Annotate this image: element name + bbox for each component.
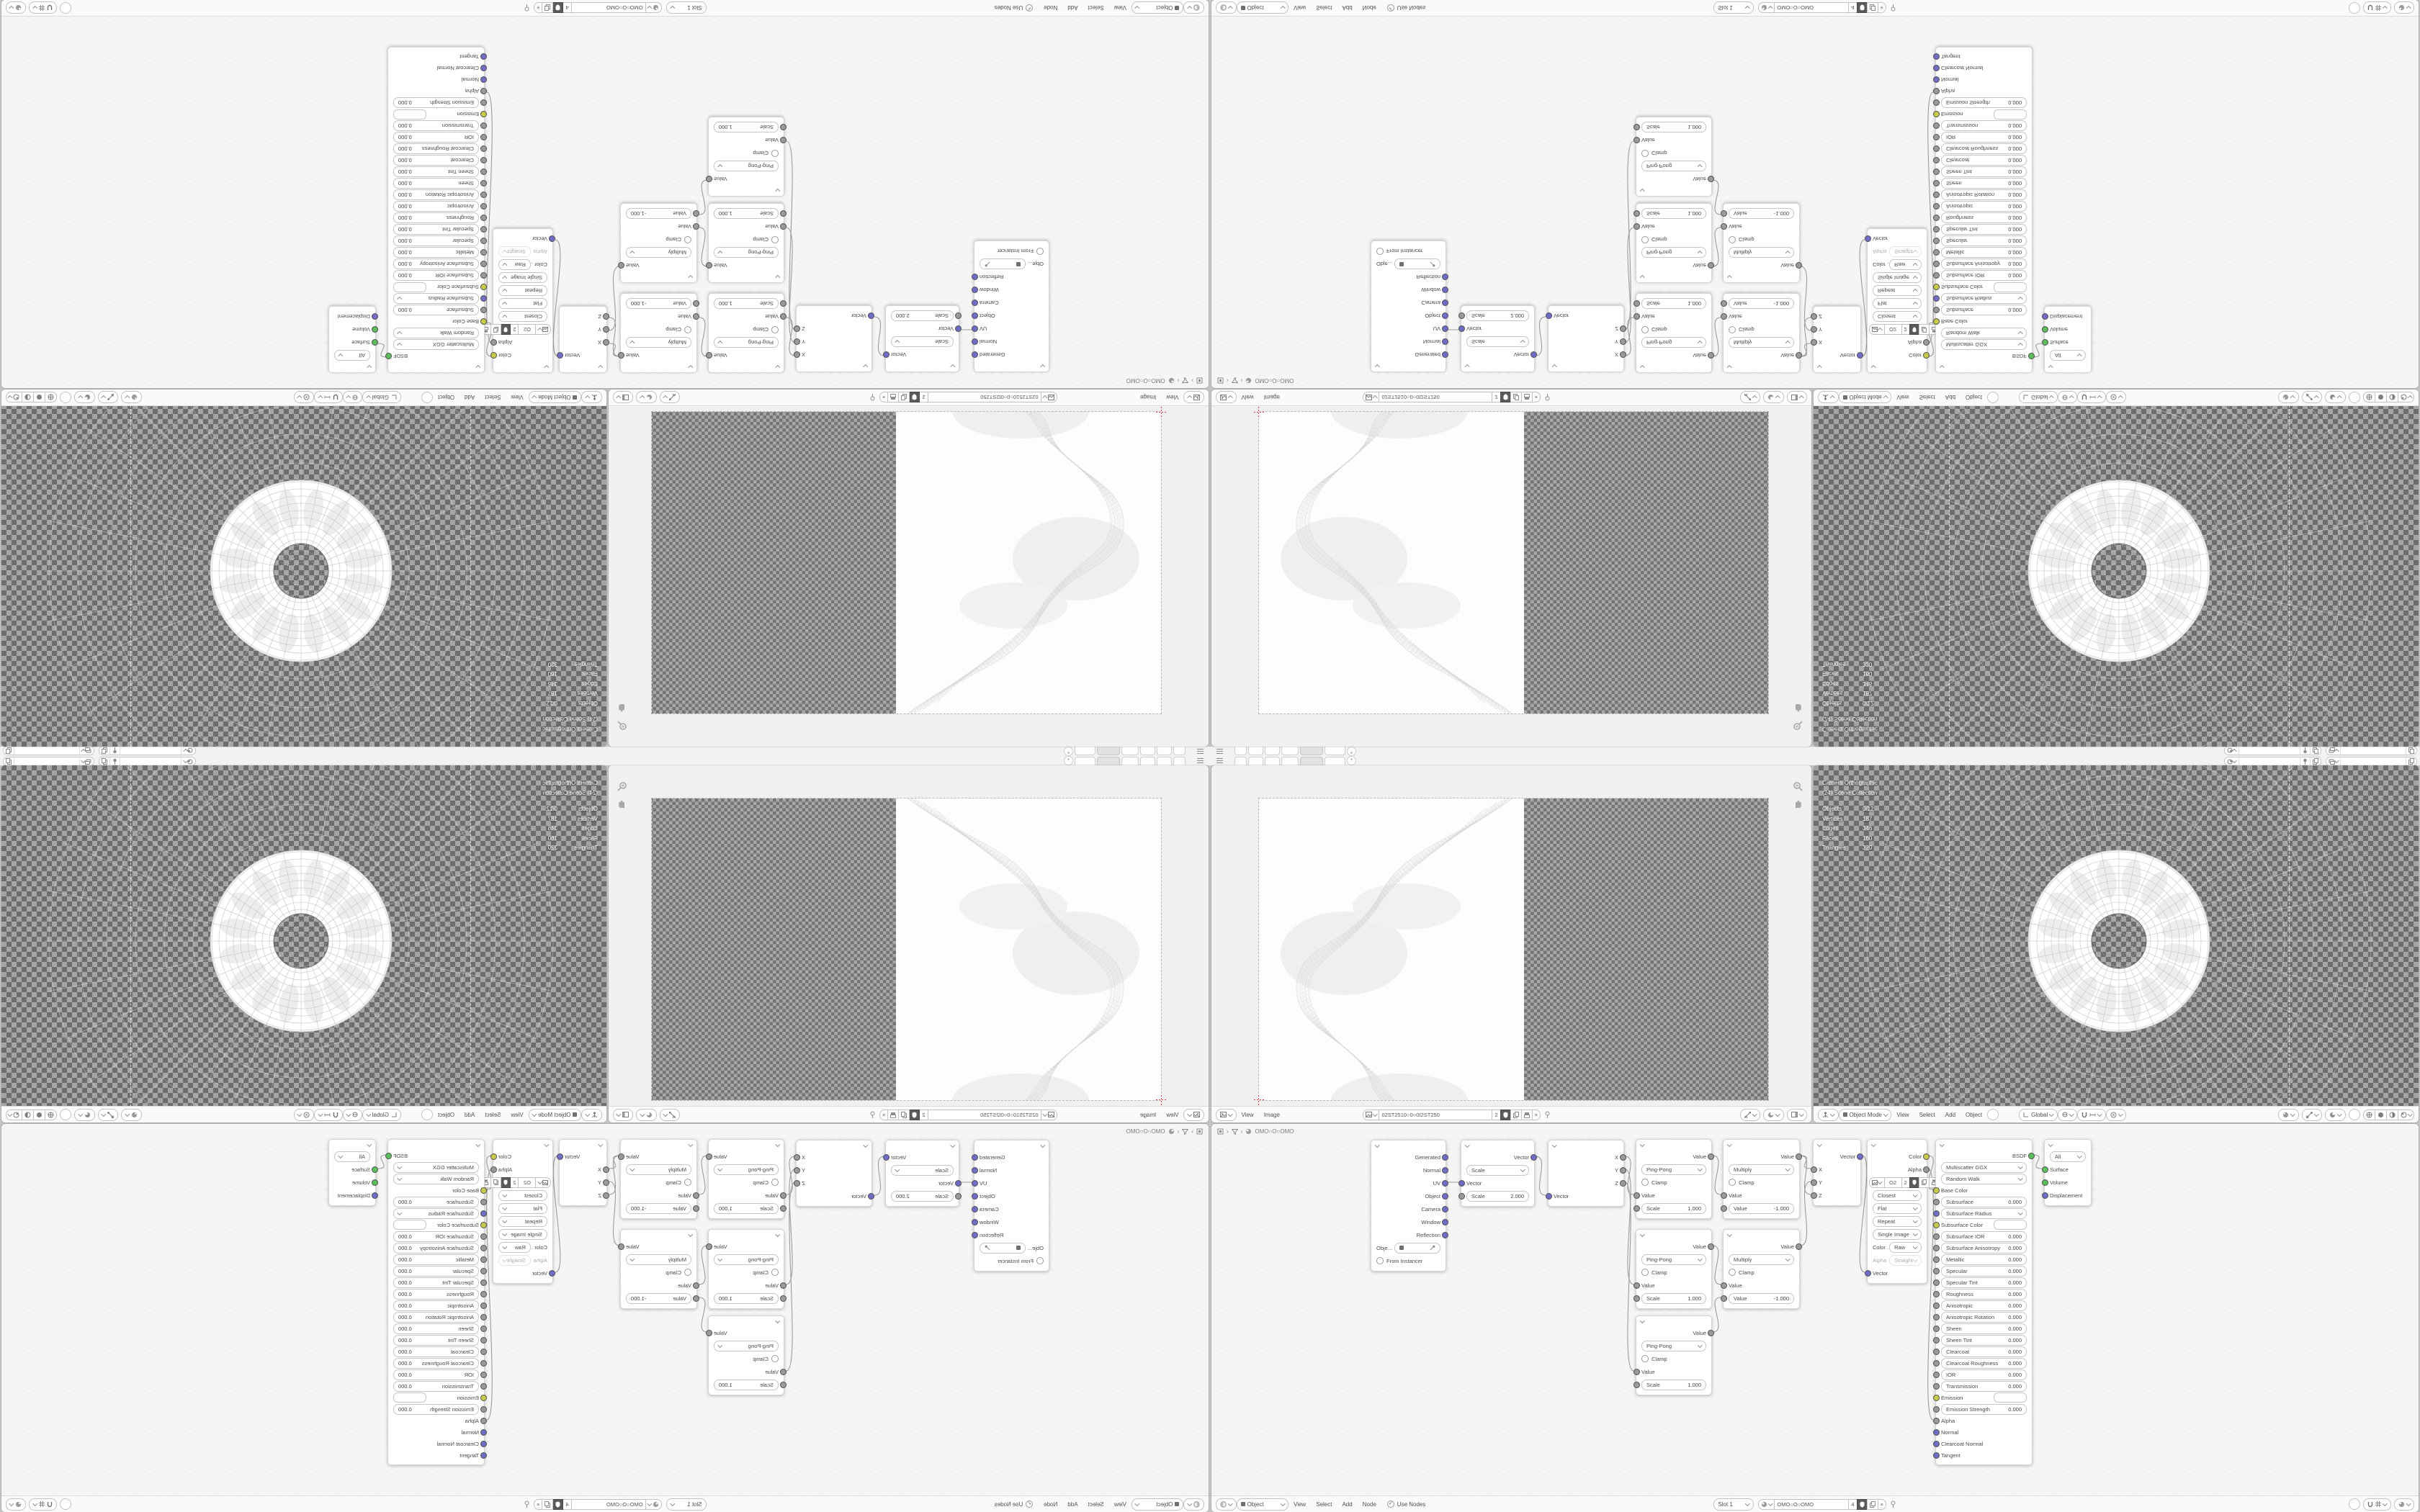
checkbox[interactable]: [771, 1355, 779, 1362]
eyedropper-icon[interactable]: [985, 1245, 990, 1251]
value-socket[interactable]: [1721, 210, 1727, 217]
overlays-button[interactable]: [1763, 392, 1784, 404]
cursor-2d[interactable]: [1156, 407, 1166, 417]
value-field[interactable]: Subsurface0.000: [1941, 305, 2027, 316]
principled-bsdf-node[interactable]: BSDFMultiscatter GGXRandom WalkBase Colo…: [387, 47, 485, 373]
value-socket[interactable]: [480, 226, 487, 233]
object-field[interactable]: [980, 1243, 1026, 1254]
dropdown[interactable]: Multiply: [1729, 1254, 1794, 1265]
value-socket[interactable]: [706, 1330, 712, 1336]
value-field[interactable]: Anisotropic Rotation0.000: [393, 190, 479, 201]
workspace-tab[interactable]: [1234, 747, 1247, 756]
snap-settings-button[interactable]: [314, 392, 343, 404]
fake-user-button[interactable]: [1857, 3, 1867, 14]
image-users-button[interactable]: 2: [511, 1177, 519, 1188]
value-socket[interactable]: [1811, 1192, 1817, 1199]
separate-xyz-node[interactable]: XYZVector: [796, 305, 872, 372]
value-socket[interactable]: [1633, 124, 1640, 130]
value-socket[interactable]: [1811, 1179, 1817, 1186]
value-socket[interactable]: [490, 1166, 497, 1173]
value-field[interactable]: Emission Strength0.000: [393, 1404, 479, 1415]
math-pingpong-node[interactable]: ValuePing-PongClampValueScale1.000: [708, 203, 784, 283]
value-socket[interactable]: [618, 1153, 624, 1160]
checkbox[interactable]: [1729, 1179, 1736, 1186]
color-socket[interactable]: [1923, 352, 1930, 359]
value-socket[interactable]: [1796, 352, 1802, 359]
value-socket[interactable]: [780, 210, 786, 217]
value-field[interactable]: Value-1.000: [626, 1293, 691, 1304]
node-collapse-chevron[interactable]: [709, 186, 784, 196]
pan-gizmo-icon[interactable]: [1793, 798, 1803, 809]
node-collapse-chevron[interactable]: [1868, 1140, 1927, 1150]
use-nodes-toggle[interactable]: ✓ Use Nodes: [1387, 4, 1426, 12]
menu-object[interactable]: Object: [438, 1112, 454, 1118]
vector-socket[interactable]: [972, 338, 978, 345]
checkbox[interactable]: [684, 1179, 691, 1186]
dropdown[interactable]: Closest: [1873, 1190, 1922, 1201]
workspace-tab[interactable]: [1325, 747, 1345, 756]
value-socket[interactable]: [706, 352, 712, 359]
snap-settings-button[interactable]: [314, 1109, 343, 1121]
workspace-tab[interactable]: [1248, 747, 1263, 756]
pack-image-button[interactable]: [1521, 392, 1532, 403]
image-users-button[interactable]: 2: [920, 392, 928, 403]
value-socket[interactable]: [1633, 223, 1640, 230]
menu-add[interactable]: Add: [1342, 5, 1352, 12]
gizmo-button[interactable]: [1740, 392, 1761, 404]
dropdown[interactable]: Ping-Pong: [714, 1254, 779, 1265]
value-socket[interactable]: [480, 122, 487, 129]
dropdown[interactable]: Subsurface Radius: [393, 294, 479, 305]
color-socket[interactable]: [490, 1153, 497, 1160]
material-shading-button[interactable]: [23, 392, 35, 403]
cursor-2d[interactable]: [1254, 1095, 1264, 1105]
radial-mesh-object[interactable]: [1814, 765, 2419, 1107]
unlink-material-button[interactable]: ×: [534, 3, 542, 14]
value-field[interactable]: Scale1.000: [1641, 122, 1706, 133]
image-users-button[interactable]: 2: [1492, 1110, 1500, 1120]
node-collapse-chevron[interactable]: [709, 362, 784, 372]
shader-socket[interactable]: [2028, 353, 2035, 359]
color-swatch[interactable]: [1994, 282, 2027, 292]
solid-shading-button[interactable]: [2375, 392, 2386, 403]
vector-socket[interactable]: [868, 312, 874, 319]
show-gizmo-button[interactable]: [2278, 1109, 2299, 1121]
zoom-gizmo-icon[interactable]: [1793, 781, 1803, 791]
value-socket[interactable]: [480, 1245, 487, 1251]
vector-socket[interactable]: [1857, 352, 1863, 359]
value-socket[interactable]: [1933, 215, 1940, 221]
value-field[interactable]: Scale1.000: [714, 209, 779, 220]
math-multiply-node[interactable]: ValueMultiplyClampValueValue-1.000: [620, 1139, 697, 1219]
menu-node[interactable]: Node: [1363, 5, 1376, 12]
transform-gizmo-button[interactable]: [1987, 1109, 1999, 1120]
unlink-image-button[interactable]: ×: [879, 1110, 888, 1120]
app-menu-icon[interactable]: [1216, 751, 1223, 752]
value-socket[interactable]: [780, 124, 786, 130]
value-field[interactable]: Scale2.000: [891, 311, 954, 322]
dropdown[interactable]: Single Image: [498, 273, 547, 284]
principled-bsdf-node[interactable]: BSDFMultiscatter GGXRandom WalkBase Colo…: [1935, 1139, 2033, 1465]
dropdown[interactable]: Flat: [498, 299, 547, 310]
workspace-tabs[interactable]: [1075, 747, 1186, 756]
menu-select[interactable]: Select: [1088, 1501, 1104, 1508]
shader-socket[interactable]: [2028, 1153, 2035, 1159]
slot-dropdown[interactable]: Slot 1: [1713, 2, 1754, 14]
dropdown[interactable]: Ping-Pong: [1641, 248, 1706, 258]
value-socket[interactable]: [480, 307, 487, 313]
value-field[interactable]: Roughness0.000: [1941, 213, 2027, 224]
vector-socket[interactable]: [557, 1153, 563, 1160]
copy-icon[interactable]: [2313, 747, 2318, 754]
mode-dropdown[interactable]: Object Mode: [1839, 392, 1892, 404]
value-socket[interactable]: [480, 203, 487, 210]
value-socket[interactable]: [480, 1372, 487, 1378]
pin-icon[interactable]: [113, 758, 118, 765]
node-collapse-chevron[interactable]: [1636, 272, 1711, 282]
principled-bsdf-node[interactable]: BSDFMultiscatter GGXRandom WalkBase Colo…: [387, 1139, 485, 1465]
material-output-node[interactable]: AllSurfaceVolumeDisplacement: [328, 1139, 376, 1206]
math-pingpong-node[interactable]: ValuePing-PongClampValueScale1.000: [1636, 1229, 1712, 1309]
vector-socket[interactable]: [1458, 325, 1465, 332]
vector-socket[interactable]: [972, 1193, 978, 1200]
menu-add[interactable]: Add: [1945, 395, 1955, 401]
value-field[interactable]: Anisotropic Rotation0.000: [1941, 190, 2027, 201]
value-field[interactable]: Scale2.000: [891, 1191, 954, 1202]
value-socket[interactable]: [780, 1295, 786, 1302]
color-socket[interactable]: [1933, 1222, 1940, 1228]
value-socket[interactable]: [693, 1295, 699, 1302]
menu-view[interactable]: View: [1166, 395, 1178, 401]
node-collapse-chevron[interactable]: [329, 362, 375, 372]
overlays-dropdown-button[interactable]: [98, 392, 119, 404]
menu-view[interactable]: View: [1294, 1501, 1306, 1508]
value-socket[interactable]: [1708, 1243, 1714, 1250]
math-multiply-node[interactable]: ValueMultiplyClampValueValue-1.000: [620, 293, 697, 373]
value-socket[interactable]: [780, 300, 786, 307]
value-field[interactable]: Subsurface0.000: [393, 305, 479, 316]
value-field[interactable]: Sheen0.000: [393, 1323, 479, 1334]
shading-extra-button[interactable]: [60, 1109, 72, 1120]
value-field[interactable]: Roughness0.000: [393, 213, 479, 224]
shader-context-dropdown[interactable]: Object: [1131, 1498, 1184, 1511]
value-socket[interactable]: [1933, 1256, 1940, 1263]
value-socket[interactable]: [780, 1192, 786, 1199]
color-socket[interactable]: [480, 1187, 487, 1194]
dropdown[interactable]: Random Walk: [1941, 1174, 2027, 1184]
node-collapse-chevron[interactable]: [329, 1140, 375, 1150]
node-collapse-chevron[interactable]: [621, 272, 696, 282]
value-socket[interactable]: [1933, 1360, 1940, 1367]
value-socket[interactable]: [603, 313, 609, 320]
node-collapse-chevron[interactable]: [886, 361, 959, 372]
menu-view[interactable]: View: [1896, 395, 1909, 401]
checkbox[interactable]: [1641, 326, 1649, 333]
workspace-tab[interactable]: [1248, 757, 1263, 765]
transform-gizmo-button[interactable]: [1987, 392, 1999, 403]
node-collapse-chevron[interactable]: [1461, 1140, 1534, 1151]
value-field[interactable]: Clearcoat Roughness0.000: [1941, 1358, 2027, 1369]
wireframe-shading-button[interactable]: [46, 1110, 58, 1120]
dropdown[interactable]: Scale: [891, 1165, 954, 1176]
color-socket[interactable]: [490, 352, 497, 359]
value-socket[interactable]: [480, 1383, 487, 1390]
material-users-button[interactable]: 4: [1848, 3, 1856, 14]
dropdown[interactable]: Straight: [1889, 1255, 1922, 1266]
options-button[interactable]: [1787, 1109, 1808, 1121]
fake-user-button[interactable]: [501, 1177, 511, 1188]
value-field[interactable]: Sheen0.000: [1941, 179, 2027, 189]
dropdown[interactable]: All: [334, 351, 370, 361]
value-socket[interactable]: [1620, 1167, 1626, 1174]
checkbox[interactable]: [771, 326, 779, 333]
value-socket[interactable]: [706, 1243, 712, 1250]
workspace-tab[interactable]: [1075, 757, 1095, 765]
workspace-tab[interactable]: [1097, 747, 1120, 756]
workspace-tab[interactable]: [1173, 747, 1186, 756]
vector-math-node[interactable]: VectorScaleVectorScale2.000: [885, 1140, 959, 1207]
value-field[interactable]: Value-1.000: [1729, 209, 1794, 220]
dropdown[interactable]: All: [2050, 351, 2086, 361]
vector-socket[interactable]: [1442, 1219, 1448, 1225]
vector-socket[interactable]: [1865, 1270, 1871, 1277]
math-pingpong-node[interactable]: ValuePing-PongClampValueScale1.000: [1636, 203, 1712, 283]
separate-xyz-node[interactable]: XYZVector: [1548, 1140, 1624, 1207]
dropdown[interactable]: Single Image: [1873, 1229, 1922, 1240]
image-name-field[interactable]: O2: [519, 325, 537, 336]
value-socket[interactable]: [955, 1193, 962, 1200]
color-swatch[interactable]: [393, 109, 426, 120]
pan-gizmo-icon[interactable]: [1793, 703, 1803, 714]
value-socket[interactable]: [693, 313, 699, 320]
checkbox[interactable]: [1729, 236, 1736, 243]
dropdown[interactable]: Straight: [1889, 247, 1922, 258]
value-socket[interactable]: [780, 1282, 786, 1289]
radial-mesh-object[interactable]: [1, 405, 606, 747]
vector-socket[interactable]: [1933, 1441, 1940, 1447]
browse-image-button[interactable]: [537, 325, 552, 336]
value-socket[interactable]: [1721, 1282, 1727, 1289]
vector-socket[interactable]: [1546, 312, 1552, 319]
value-socket[interactable]: [480, 215, 487, 221]
value-socket[interactable]: [706, 1153, 712, 1160]
shading-extra-button[interactable]: [60, 392, 72, 403]
vector-socket[interactable]: [1442, 351, 1448, 358]
color-swatch[interactable]: [1994, 1392, 2027, 1403]
material-name-field[interactable]: OMO○O○OMO: [1774, 1499, 1848, 1510]
texture-coordinate-node[interactable]: GeneratedNormalUVObjectCameraWindowRefle…: [974, 240, 1049, 372]
material-name-field[interactable]: OMO○O○OMO: [572, 3, 646, 14]
mode-dropdown[interactable]: Object Mode: [529, 1109, 582, 1121]
object-field[interactable]: [1394, 259, 1440, 270]
snap-settings-button[interactable]: [30, 2, 58, 14]
node-collapse-chevron[interactable]: [1868, 362, 1927, 372]
pin-icon[interactable]: [869, 394, 876, 401]
fake-user-button[interactable]: [1500, 1110, 1510, 1120]
rendered-shading-button[interactable]: [6, 1110, 23, 1120]
scene-selector[interactable]: [99, 746, 197, 755]
dropdown[interactable]: Ping-Pong: [714, 161, 779, 172]
checkbox[interactable]: [684, 1269, 691, 1276]
transform-gizmo-button[interactable]: [421, 392, 433, 403]
value-socket[interactable]: [693, 210, 699, 217]
show-gizmo-button[interactable]: [122, 1109, 143, 1121]
xray-button[interactable]: [2325, 392, 2346, 404]
checkbox[interactable]: [1641, 1269, 1649, 1276]
overlays-button[interactable]: [2394, 2, 2415, 14]
node-collapse-chevron[interactable]: [1371, 361, 1446, 372]
editor-type-button[interactable]: [1184, 1109, 1205, 1121]
dropdown[interactable]: Straight: [498, 1255, 531, 1266]
value-field[interactable]: Value-1.000: [1729, 1203, 1794, 1214]
value-field[interactable]: Transmission0.000: [1941, 1381, 2027, 1392]
proportional-edit-button[interactable]: [2106, 1109, 2127, 1121]
value-field[interactable]: Value-1.000: [626, 209, 691, 220]
value-socket[interactable]: [480, 1314, 487, 1320]
vector-socket[interactable]: [1933, 1429, 1940, 1436]
value-field[interactable]: Emission Strength0.000: [393, 98, 479, 109]
snap-toggle-button[interactable]: [2349, 1498, 2360, 1510]
shader-context-dropdown[interactable]: Object: [1237, 2, 1289, 14]
value-socket[interactable]: [480, 157, 487, 163]
menu-object[interactable]: Object: [1966, 395, 1982, 401]
copy-icon[interactable]: [6, 758, 12, 765]
node-collapse-chevron[interactable]: [709, 1230, 784, 1240]
workspace-tab[interactable]: [1325, 757, 1345, 765]
menu-view[interactable]: View: [1114, 1501, 1126, 1508]
value-field[interactable]: Subsurface IOR0.000: [1941, 1231, 2027, 1242]
copy-icon[interactable]: [2313, 758, 2318, 765]
app-menu-icon[interactable]: [1197, 751, 1204, 752]
checkbox[interactable]: [1641, 1179, 1649, 1186]
value-socket[interactable]: [1933, 157, 1940, 163]
value-field[interactable]: Sheen Tint0.000: [1941, 1335, 2027, 1346]
workspace-tab[interactable]: [1075, 747, 1095, 756]
mode-dropdown[interactable]: Object Mode: [1839, 1109, 1892, 1121]
image-name-field[interactable]: 02ST2510○0○0I2ST250: [928, 392, 1041, 403]
value-socket[interactable]: [603, 1192, 609, 1199]
value-socket[interactable]: [693, 300, 699, 307]
value-field[interactable]: Scale1.000: [1641, 1203, 1706, 1214]
dropdown[interactable]: Closest: [1873, 312, 1922, 323]
unlink-image-button[interactable]: ×: [1532, 392, 1541, 403]
vector-socket[interactable]: [1458, 1180, 1465, 1187]
xray-button[interactable]: [75, 1109, 96, 1121]
vector-socket[interactable]: [1442, 338, 1448, 345]
value-socket[interactable]: [1721, 1205, 1727, 1212]
vector-socket[interactable]: [972, 1219, 978, 1225]
editor-gizmos[interactable]: [617, 781, 627, 809]
overlays-button[interactable]: [6, 1498, 27, 1511]
color-swatch[interactable]: [393, 282, 426, 292]
vector-socket[interactable]: [1546, 1193, 1552, 1200]
pin-icon[interactable]: [2303, 758, 2308, 765]
new-material-button[interactable]: [1867, 3, 1878, 14]
vector-socket[interactable]: [972, 312, 978, 319]
value-field[interactable]: IOR0.000: [1941, 132, 2027, 143]
menu-add[interactable]: Add: [1067, 5, 1077, 12]
value-field[interactable]: Specular0.000: [393, 236, 479, 247]
dropdown[interactable]: Multiply: [1729, 338, 1794, 348]
pin-icon[interactable]: [1544, 1111, 1551, 1118]
menu-image[interactable]: Image: [1264, 1112, 1280, 1118]
material-output-node[interactable]: AllSurfaceVolumeDisplacement: [2044, 1139, 2092, 1206]
value-socket[interactable]: [1933, 226, 1940, 233]
vector-socket[interactable]: [372, 313, 378, 320]
overlays-dropdown-button[interactable]: [98, 1109, 119, 1121]
transform-gizmo-button[interactable]: [421, 1109, 433, 1120]
add-workspace-button[interactable]: +: [1064, 756, 1073, 765]
material-output-node[interactable]: AllSurfaceVolumeDisplacement: [2044, 306, 2092, 373]
vector-socket[interactable]: [972, 1180, 978, 1187]
value-socket[interactable]: [480, 249, 487, 256]
value-socket[interactable]: [794, 1180, 800, 1187]
color-socket[interactable]: [1933, 284, 1940, 290]
image-users-button[interactable]: 2: [1901, 325, 1909, 336]
workspace-tab[interactable]: [1140, 747, 1155, 756]
use-nodes-toggle[interactable]: ✓ Use Nodes: [995, 4, 1034, 12]
zoom-gizmo-icon[interactable]: [617, 781, 627, 791]
value-field[interactable]: Transmission0.000: [393, 121, 479, 132]
dropdown[interactable]: Scale: [1466, 1165, 1529, 1176]
color-socket[interactable]: [1923, 1153, 1930, 1160]
value-field[interactable]: Subsurface Anisotropy0.000: [1941, 1243, 2027, 1254]
shader-socket[interactable]: [2042, 339, 2048, 346]
dropdown[interactable]: Multiply: [626, 338, 691, 348]
value-field[interactable]: Anisotropic0.000: [393, 1300, 479, 1311]
workspace-tab[interactable]: [1300, 757, 1323, 765]
workspace-tab[interactable]: [1265, 757, 1280, 765]
value-socket[interactable]: [1933, 192, 1940, 198]
node-collapse-chevron[interactable]: [1549, 361, 1623, 372]
node-collapse-chevron[interactable]: [974, 361, 1049, 372]
node-collapse-chevron[interactable]: [1549, 1140, 1623, 1151]
texture-coordinate-node[interactable]: GeneratedNormalUVObjectCameraWindowRefle…: [1371, 240, 1446, 372]
snap-settings-button[interactable]: [30, 1498, 58, 1511]
gizmo-button[interactable]: [660, 392, 681, 404]
vector-socket[interactable]: [1442, 300, 1448, 306]
material-output-node[interactable]: AllSurfaceVolumeDisplacement: [328, 306, 376, 373]
math-pingpong-node[interactable]: ValuePing-PongClampValueScale1.000: [708, 1229, 784, 1309]
dropdown[interactable]: Raw: [1889, 260, 1922, 271]
unlink-material-button[interactable]: ×: [1878, 1499, 1886, 1510]
image-name-field[interactable]: O2: [1884, 325, 1901, 336]
value-socket[interactable]: [1933, 1326, 1940, 1332]
value-field[interactable]: Specular0.000: [1941, 1266, 2027, 1277]
value-field[interactable]: Scale1.000: [1641, 299, 1706, 310]
value-field[interactable]: Clearcoat0.000: [1941, 156, 2027, 166]
menu-select[interactable]: Select: [1919, 1112, 1935, 1118]
editor-type-button[interactable]: [1184, 392, 1205, 404]
value-field[interactable]: Subsurface IOR0.000: [1941, 271, 2027, 282]
value-socket[interactable]: [794, 338, 800, 345]
pin-icon[interactable]: [869, 1111, 876, 1118]
node-collapse-chevron[interactable]: [560, 362, 606, 372]
image-name-field[interactable]: 02ST2510○0○0I2ST250: [1379, 1110, 1492, 1120]
vector-socket[interactable]: [1442, 1154, 1448, 1161]
value-socket[interactable]: [618, 1243, 624, 1250]
shader-socket[interactable]: [372, 326, 378, 333]
material-users-button[interactable]: 4: [1848, 1499, 1856, 1510]
checkbox[interactable]: [1641, 150, 1649, 157]
cursor-2d[interactable]: [1156, 1095, 1166, 1105]
menu-add[interactable]: Add: [1342, 1501, 1352, 1508]
material-users-button[interactable]: 4: [563, 1499, 571, 1510]
editor-type-button[interactable]: [1818, 1109, 1839, 1121]
slot-dropdown[interactable]: Slot 1: [1713, 1498, 1754, 1511]
vector-socket[interactable]: [2042, 1192, 2048, 1199]
slot-dropdown[interactable]: Slot 1: [666, 2, 707, 14]
